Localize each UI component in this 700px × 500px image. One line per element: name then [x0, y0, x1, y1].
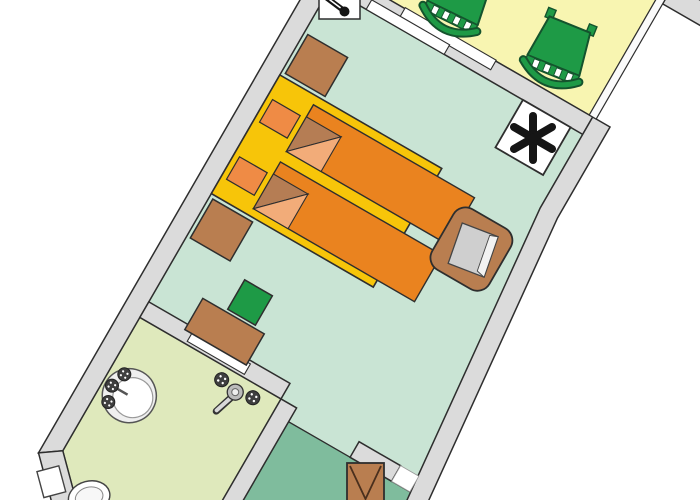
wardrobe-body: [347, 463, 384, 500]
thermometer-box: [319, 0, 360, 19]
floor-plan-canvas: [0, 0, 700, 500]
wardrobe: [347, 463, 384, 500]
floor-plan-image: [0, 0, 700, 500]
